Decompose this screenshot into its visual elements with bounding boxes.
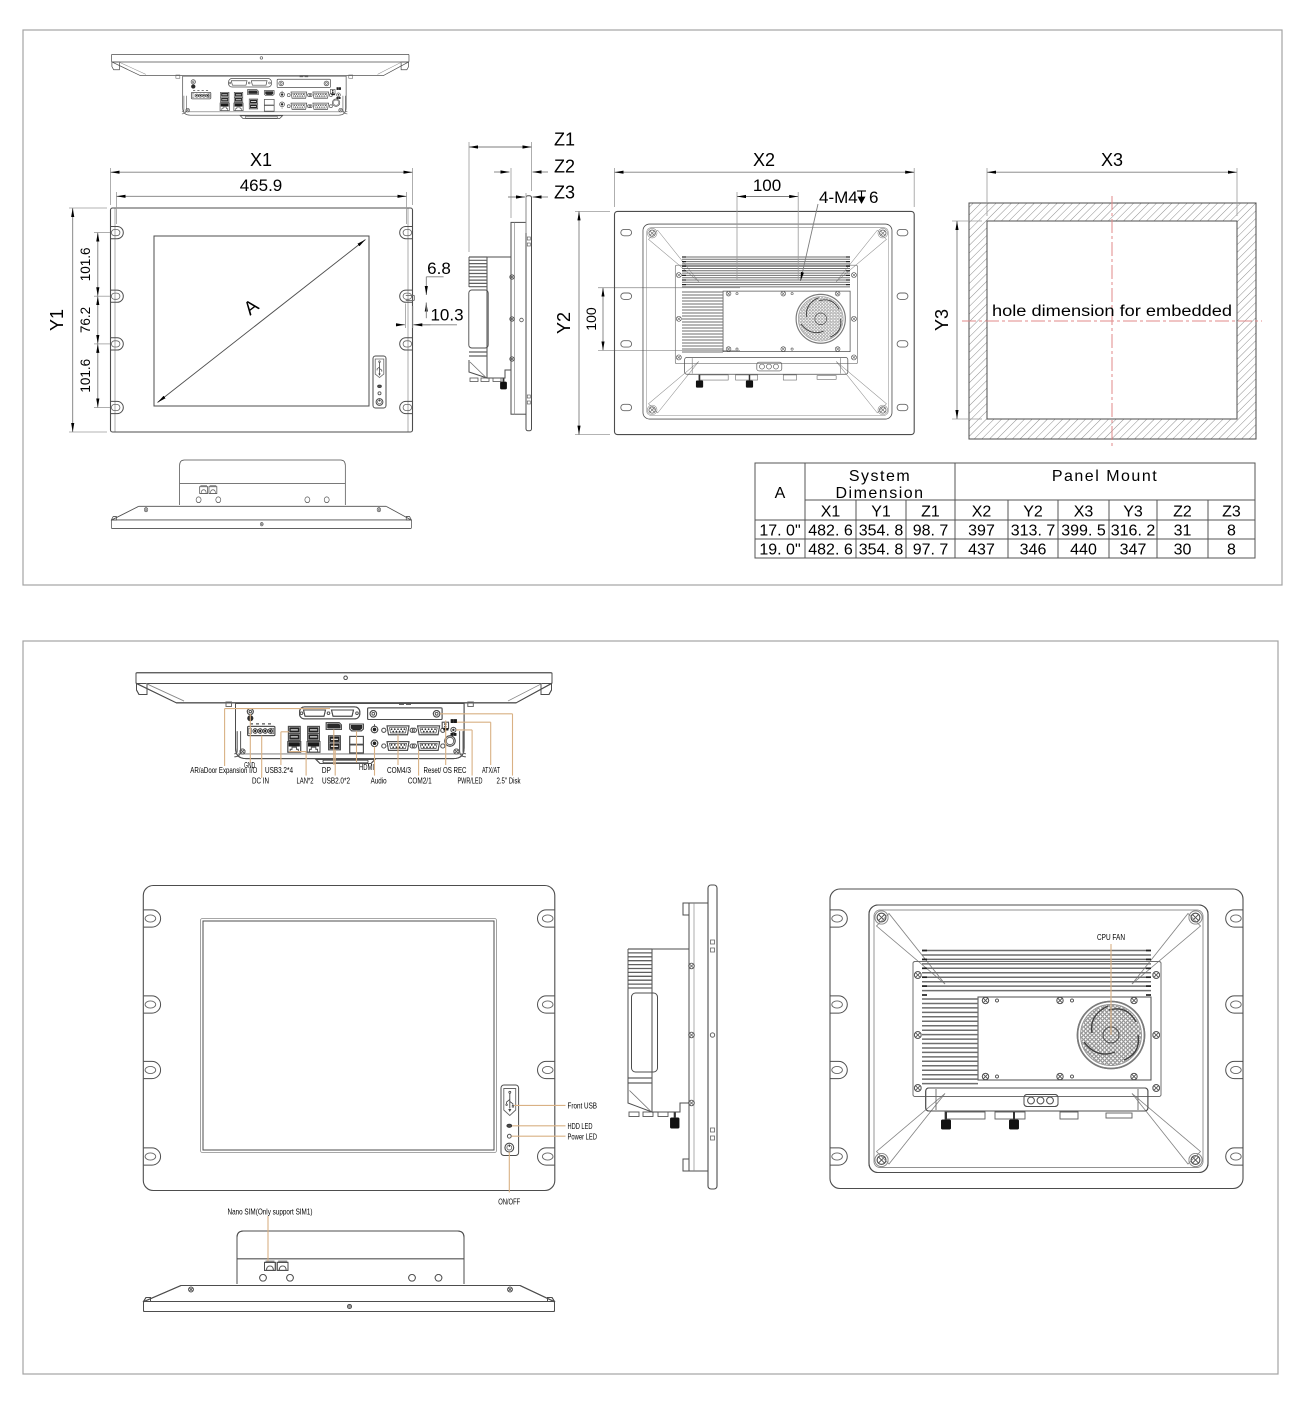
- svg-text:313. 7: 313. 7: [1011, 523, 1056, 540]
- svg-text:hole dimension for embedded: hole dimension for embedded: [992, 303, 1232, 320]
- svg-text:76.2: 76.2: [78, 307, 93, 333]
- svg-text:Y1: Y1: [871, 504, 891, 521]
- svg-text:31: 31: [1174, 523, 1192, 540]
- svg-text:482. 6: 482. 6: [808, 542, 853, 559]
- svg-text:COM2/1: COM2/1: [408, 775, 432, 785]
- svg-text:X2: X2: [753, 150, 775, 170]
- svg-text:100: 100: [753, 176, 781, 195]
- svg-text:Y3: Y3: [1123, 504, 1143, 521]
- svg-text:Panel Mount: Panel Mount: [1052, 468, 1158, 485]
- svg-text:Z2: Z2: [1173, 504, 1192, 521]
- svg-text:ATX/AT: ATX/AT: [482, 765, 500, 775]
- svg-text:101.6: 101.6: [78, 359, 93, 393]
- svg-text:USB3.2*4: USB3.2*4: [265, 765, 293, 775]
- svg-text:354. 8: 354. 8: [859, 542, 904, 559]
- svg-text:17. 0": 17. 0": [759, 523, 800, 540]
- svg-text:COM4/3: COM4/3: [387, 765, 411, 775]
- svg-text:Y1: Y1: [47, 309, 67, 331]
- svg-text:2.5" Disk: 2.5" Disk: [497, 775, 522, 785]
- svg-text:AR/aDoor Expansion I/O: AR/aDoor Expansion I/O: [190, 765, 257, 775]
- svg-text:Y3: Y3: [932, 309, 952, 331]
- svg-text:Z1: Z1: [921, 504, 940, 521]
- svg-text:X3: X3: [1101, 150, 1123, 170]
- svg-text:4-M4: 4-M4: [819, 188, 858, 207]
- svg-text:Audio: Audio: [371, 775, 387, 785]
- svg-text:354. 8: 354. 8: [859, 523, 904, 540]
- svg-text:316. 2: 316. 2: [1111, 523, 1156, 540]
- svg-text:Y2: Y2: [554, 312, 574, 334]
- svg-text:8: 8: [1227, 523, 1236, 540]
- svg-text:98. 7: 98. 7: [913, 523, 949, 540]
- svg-text:A: A: [775, 485, 786, 502]
- svg-text:HDD LED: HDD LED: [568, 1121, 593, 1131]
- svg-text:DC IN: DC IN: [252, 775, 269, 785]
- svg-text:Nano SIM(Only support SIM1): Nano SIM(Only support SIM1): [228, 1206, 313, 1216]
- svg-text:437: 437: [968, 542, 995, 559]
- svg-text:6.8: 6.8: [427, 259, 451, 278]
- svg-text:X2: X2: [972, 504, 992, 521]
- svg-text:Z1: Z1: [554, 130, 575, 150]
- svg-text:Reset/ OS REC: Reset/ OS REC: [424, 765, 467, 775]
- svg-text:Power LED: Power LED: [568, 1132, 598, 1142]
- svg-text:System: System: [849, 468, 911, 485]
- svg-text:X3: X3: [1074, 504, 1094, 521]
- svg-text:347: 347: [1120, 542, 1147, 559]
- svg-text:19. 0": 19. 0": [759, 542, 800, 559]
- svg-text:30: 30: [1174, 542, 1192, 559]
- svg-text:X1: X1: [250, 150, 272, 170]
- svg-text:Z2: Z2: [554, 157, 575, 177]
- svg-text:LAN*2: LAN*2: [297, 775, 314, 785]
- svg-text:Z3: Z3: [1222, 504, 1241, 521]
- svg-text:97. 7: 97. 7: [913, 542, 949, 559]
- svg-text:399. 5: 399. 5: [1061, 523, 1106, 540]
- svg-text:Dimension: Dimension: [835, 485, 924, 502]
- svg-text:Z3: Z3: [554, 183, 575, 203]
- svg-text:100: 100: [583, 307, 599, 331]
- svg-text:X1: X1: [821, 504, 841, 521]
- svg-text:482. 6: 482. 6: [808, 523, 853, 540]
- svg-text:101.6: 101.6: [78, 248, 93, 282]
- svg-text:DP: DP: [322, 765, 331, 775]
- svg-text:PWR/LED: PWR/LED: [458, 775, 483, 785]
- svg-text:ON/OFF: ON/OFF: [498, 1197, 520, 1207]
- svg-text:397: 397: [968, 523, 995, 540]
- svg-text:346: 346: [1020, 542, 1047, 559]
- svg-text:CPU FAN: CPU FAN: [1097, 932, 1125, 942]
- svg-text:465.9: 465.9: [240, 176, 283, 195]
- svg-text:Y2: Y2: [1023, 504, 1043, 521]
- svg-text:10.3: 10.3: [430, 306, 463, 325]
- svg-text:HDMI: HDMI: [359, 762, 374, 772]
- svg-text:8: 8: [1227, 542, 1236, 559]
- svg-text:USB2.0*2: USB2.0*2: [322, 775, 350, 785]
- svg-text:6: 6: [869, 188, 878, 207]
- svg-text:440: 440: [1070, 542, 1097, 559]
- svg-text:Front USB: Front USB: [568, 1101, 598, 1111]
